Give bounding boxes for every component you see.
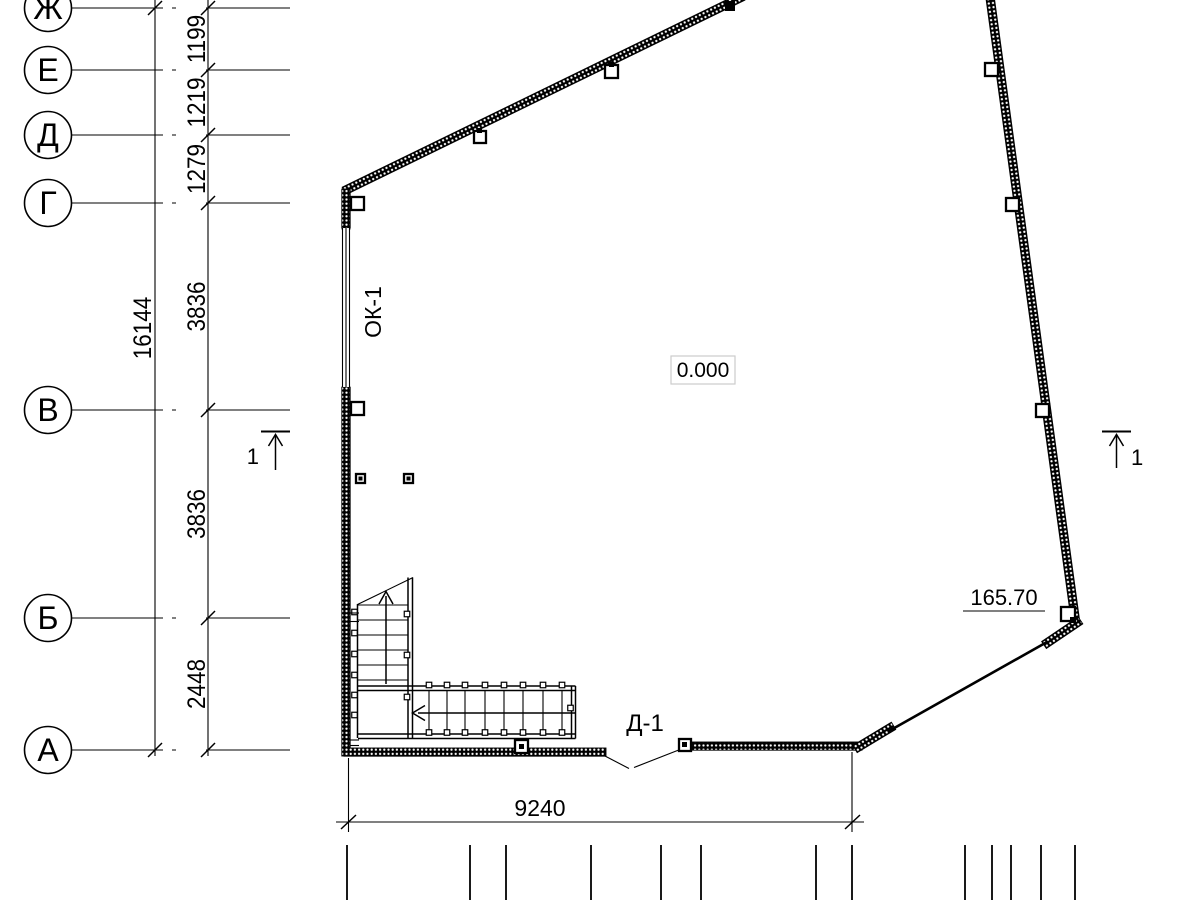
level-zero-label: 0.000 — [677, 359, 730, 382]
axis-label-Г: Г — [39, 185, 56, 221]
axis-label-Б: Б — [38, 600, 59, 636]
floor-plan-svg: ЖЕДГВБА 11991219127938363836244816144 — [0, 0, 1200, 900]
staircase — [350, 578, 576, 746]
axis-label-А: А — [37, 732, 59, 768]
stair-baluster — [352, 630, 358, 636]
axis-dimension-value: 2448 — [183, 659, 211, 709]
column-marker — [351, 197, 364, 210]
stair-baluster — [568, 705, 574, 711]
axis-dimension-value: 3836 — [183, 489, 211, 539]
wall-bottom-right — [679, 742, 862, 750]
axis-dimension-value: 3836 — [183, 281, 211, 331]
stair-baluster — [462, 682, 468, 688]
stair-baluster — [404, 652, 410, 658]
stair-baluster — [501, 730, 507, 736]
stair-baluster — [352, 651, 358, 657]
column-marker — [725, 1, 735, 11]
axis-dimension-values: 11991219127938363836244816144 — [129, 15, 211, 709]
stair-baluster — [559, 730, 565, 736]
stair-baluster — [352, 609, 358, 615]
column-marker-dot — [682, 742, 687, 747]
stair-baluster — [444, 730, 450, 736]
axis-label-Ж: Ж — [33, 0, 63, 26]
column-marker-dot — [407, 477, 411, 481]
drawing-canvas: ЖЕДГВБА 11991219127938363836244816144 — [0, 0, 1200, 900]
wall-right — [986, 0, 1080, 624]
column-marker-dot — [359, 477, 363, 481]
section-mark-left: 1 — [247, 432, 290, 471]
stair-baluster — [444, 682, 450, 688]
stair-baluster — [426, 682, 432, 688]
wall-top — [342, 0, 745, 195]
stair-left-arrow — [413, 706, 576, 721]
stair-baluster — [352, 692, 358, 698]
stair-baluster — [404, 611, 410, 617]
stair-baluster — [352, 712, 358, 718]
section-mark-left-label: 1 — [247, 444, 259, 469]
stair-baluster — [520, 682, 526, 688]
axis-label-Е: Е — [37, 52, 58, 88]
axis-dimension-value: 1279 — [183, 144, 211, 194]
stair-baluster — [404, 694, 410, 700]
stair-baluster — [540, 682, 546, 688]
wall-left-lower — [342, 387, 350, 756]
axis-label-В: В — [37, 392, 58, 428]
section-mark-right: 1 — [1102, 432, 1143, 471]
stair-baluster — [501, 682, 507, 688]
stair-baluster — [482, 730, 488, 736]
column-marker-dot — [519, 744, 524, 749]
wall-left-upper — [342, 189, 350, 229]
axis-grid: ЖЕДГВБА — [25, 0, 291, 774]
stair-treads — [352, 605, 574, 735]
stair-baluster — [540, 730, 546, 736]
wall-bottom-left — [344, 748, 606, 756]
level-upper-annotation: 165.70 — [963, 585, 1045, 611]
column-marker-dot — [609, 62, 614, 67]
column-marker — [1036, 404, 1049, 417]
column-marker-dot — [1070, 617, 1076, 623]
lower-sheet-ticks — [347, 845, 1075, 900]
window-ok1 — [342, 228, 350, 387]
door-mark-label: Д-1 — [626, 710, 664, 737]
column-marker — [985, 63, 998, 76]
stair-baluster — [559, 682, 565, 688]
dimension-9240-label: 9240 — [514, 795, 565, 821]
stair-baluster — [482, 682, 488, 688]
window-mark-label: ОК-1 — [360, 286, 386, 338]
column-marker-dot — [477, 128, 482, 133]
stair-baluster — [462, 730, 468, 736]
stair-baluster — [520, 730, 526, 736]
section-mark-right-label: 1 — [1131, 445, 1143, 470]
column-marker — [351, 402, 364, 415]
fence-line — [889, 642, 1047, 731]
wall-corner-piece-left — [853, 722, 896, 752]
level-upper-label: 165.70 — [970, 585, 1037, 610]
overall-dimension-value: 16144 — [129, 297, 157, 360]
level-zero-annotation: 0.000 — [671, 356, 735, 384]
stair-baluster — [352, 672, 358, 678]
column-marker — [1006, 198, 1019, 211]
door-d1 — [605, 750, 680, 769]
axis-label-Д: Д — [37, 117, 59, 153]
stair-baluster — [426, 730, 432, 736]
axis-dimension-value: 1219 — [183, 77, 211, 127]
axis-dimension-value: 1199 — [183, 15, 211, 63]
dimension-9240: 9240 — [336, 752, 864, 832]
